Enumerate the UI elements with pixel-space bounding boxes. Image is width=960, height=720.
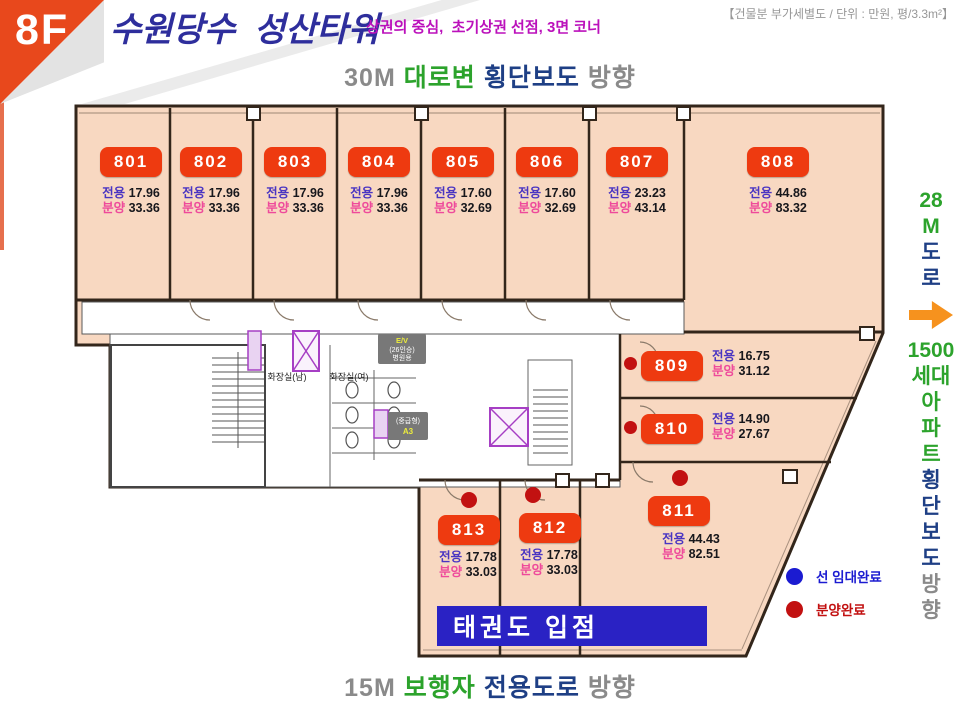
unit-exclusive-line: 전용 17.78 xyxy=(423,550,513,565)
exclusive-label: 전용 xyxy=(520,548,543,562)
unit-exclusive-line: 전용 17.96 xyxy=(250,186,340,201)
sale-value: 43.14 xyxy=(631,201,666,215)
sale-label: 분양 xyxy=(434,201,457,215)
unit-area-804: 전용 17.96분양 33.36 xyxy=(334,186,424,216)
unit-exclusive-line: 전용 17.96 xyxy=(86,186,176,201)
heading-part: 횡단보도 xyxy=(484,64,580,92)
exclusive-value: 44.86 xyxy=(772,186,807,200)
unit-sale-line: 분양 82.51 xyxy=(646,547,736,562)
unit-sale-line: 분양 33.36 xyxy=(86,201,176,216)
unit-badge-811: 811 xyxy=(648,496,710,526)
unit-badge-810: 810 xyxy=(641,414,703,444)
exclusive-value: 17.78 xyxy=(543,548,578,562)
exclusive-label: 전용 xyxy=(350,186,373,200)
rail-char: 아 xyxy=(903,390,959,416)
rail-char: 로 xyxy=(903,266,959,292)
unit-badge-806: 806 xyxy=(516,147,578,177)
sale-label: 분양 xyxy=(518,201,541,215)
rail-char: 28 xyxy=(903,188,959,214)
unit-sale-line: 분양 33.36 xyxy=(334,201,424,216)
rail-char: 향 xyxy=(903,598,959,624)
rail-char: 도 xyxy=(903,240,959,266)
rail-char: 단 xyxy=(903,494,959,520)
sold-dot-810 xyxy=(624,421,637,434)
unit-exclusive-line: 전용 17.60 xyxy=(502,186,592,201)
exclusive-label: 전용 xyxy=(662,532,685,546)
unit-area-806: 전용 17.60분양 32.69 xyxy=(502,186,592,216)
exclusive-value: 17.96 xyxy=(373,186,408,200)
unit-sale-line: 분양 31.12 xyxy=(712,364,770,379)
rail-char: 보 xyxy=(903,520,959,546)
unit-sale-line: 분양 33.36 xyxy=(250,201,340,216)
exclusive-value: 14.90 xyxy=(735,412,770,426)
sale-value: 33.36 xyxy=(289,201,324,215)
unit-badge-807: 807 xyxy=(606,147,668,177)
legend-row: 선 임대완료 xyxy=(786,566,882,586)
heading-part: 보행자 xyxy=(404,674,476,702)
unit-area-809: 전용 16.75분양 31.12 xyxy=(712,349,770,379)
unit-exclusive-line: 전용 17.78 xyxy=(504,548,594,563)
flyer-page: 8F 수원당수 성산타워 상권의 중심, 초기상권 선점, 3면 코너 【건물분… xyxy=(0,0,960,720)
unit-area-801: 전용 17.96분양 33.36 xyxy=(86,186,176,216)
sale-label: 분양 xyxy=(749,201,772,215)
unit-exclusive-line: 전용 17.96 xyxy=(334,186,424,201)
exclusive-label: 전용 xyxy=(102,186,125,200)
heading-part: 방향 xyxy=(588,64,636,92)
tenant-banner: 태권도 입점 xyxy=(437,606,707,646)
sale-label: 분양 xyxy=(439,565,462,579)
unit-sale-line: 분양 27.67 xyxy=(712,427,770,442)
sale-value: 82.51 xyxy=(685,547,720,561)
direction-bottom-heading: 15M보행자전용도로방향 xyxy=(75,668,905,704)
sale-value: 33.03 xyxy=(462,565,497,579)
unit-badge-804: 804 xyxy=(348,147,410,177)
unit-area-802: 전용 17.96분양 33.36 xyxy=(166,186,256,216)
unit-badge-805: 805 xyxy=(432,147,494,177)
heading-part: 15M xyxy=(344,674,396,702)
unit-area-808: 전용 44.86분양 83.32 xyxy=(733,186,823,216)
sale-value: 32.69 xyxy=(541,201,576,215)
heading-part: 대로변 xyxy=(404,64,476,92)
exclusive-value: 17.96 xyxy=(289,186,324,200)
rail-char: 도 xyxy=(903,546,959,572)
exclusive-label: 전용 xyxy=(608,186,631,200)
exclusive-label: 전용 xyxy=(712,412,735,426)
sale-value: 27.67 xyxy=(735,427,770,441)
unit-area-807: 전용 23.23분양 43.14 xyxy=(592,186,682,216)
sale-label: 분양 xyxy=(662,547,685,561)
sale-label: 분양 xyxy=(712,364,735,378)
right-arrow-icon xyxy=(909,301,953,329)
unit-sale-line: 분양 43.14 xyxy=(592,201,682,216)
unit-area-811: 전용 44.43분양 82.51 xyxy=(646,532,736,562)
legend: 선 임대완료분양완료 xyxy=(786,566,882,632)
heading-part: 30M xyxy=(344,64,396,92)
rail-char: 1500 xyxy=(903,338,959,364)
rail-char: M xyxy=(903,214,959,240)
unit-area-810: 전용 14.90분양 27.67 xyxy=(712,412,770,442)
legend-dot-icon xyxy=(786,568,803,585)
rail-char: 트 xyxy=(903,442,959,468)
unit-sale-line: 분양 33.36 xyxy=(166,201,256,216)
sale-value: 33.36 xyxy=(373,201,408,215)
sale-value: 83.32 xyxy=(772,201,807,215)
direction-right-rail: 28M도로1500세대아파트횡단보도방향 xyxy=(903,188,959,624)
sale-label: 분양 xyxy=(350,201,373,215)
unit-sale-line: 분양 33.03 xyxy=(423,565,513,580)
page-title: 수원당수 성산타워 xyxy=(110,2,379,51)
exclusive-label: 전용 xyxy=(434,186,457,200)
unit-exclusive-line: 전용 44.43 xyxy=(646,532,736,547)
exclusive-value: 17.96 xyxy=(205,186,240,200)
unit-area-805: 전용 17.60분양 32.69 xyxy=(418,186,508,216)
exclusive-label: 전용 xyxy=(266,186,289,200)
unit-exclusive-line: 전용 16.75 xyxy=(712,349,770,364)
unit-sale-line: 분양 32.69 xyxy=(502,201,592,216)
vat-unit-note: 【건물분 부가세별도 / 단위 : 만원, 평/3.3m²】 xyxy=(722,5,954,22)
unit-sale-line: 분양 33.03 xyxy=(504,563,594,578)
unit-badge-812: 812 xyxy=(519,513,581,543)
unit-exclusive-line: 전용 44.86 xyxy=(733,186,823,201)
unit-exclusive-line: 전용 17.96 xyxy=(166,186,256,201)
rail-char: 파 xyxy=(903,416,959,442)
legend-label: 선 임대완료 xyxy=(816,566,882,586)
exclusive-value: 44.43 xyxy=(685,532,720,546)
exclusive-label: 전용 xyxy=(749,186,772,200)
unit-badge-813: 813 xyxy=(438,515,500,545)
unit-badge-802: 802 xyxy=(180,147,242,177)
rail-char: 횡 xyxy=(903,468,959,494)
unit-badge-809: 809 xyxy=(641,351,703,381)
sold-dot-809 xyxy=(624,357,637,370)
unit-badge-801: 801 xyxy=(100,147,162,177)
sold-dot-811 xyxy=(672,470,688,486)
sale-label: 분양 xyxy=(266,201,289,215)
sale-value: 31.12 xyxy=(735,364,770,378)
unit-sale-line: 분양 32.69 xyxy=(418,201,508,216)
heading-part: 전용도로 xyxy=(484,674,580,702)
exclusive-value: 23.23 xyxy=(631,186,666,200)
exclusive-label: 전용 xyxy=(518,186,541,200)
sale-label: 분양 xyxy=(182,201,205,215)
rail-char: 세대 xyxy=(903,364,959,390)
legend-dot-icon xyxy=(786,601,803,618)
sale-label: 분양 xyxy=(520,563,543,577)
unit-sale-line: 분양 83.32 xyxy=(733,201,823,216)
exclusive-value: 17.60 xyxy=(541,186,576,200)
exclusive-label: 전용 xyxy=(182,186,205,200)
sale-label: 분양 xyxy=(608,201,631,215)
exclusive-label: 전용 xyxy=(439,550,462,564)
sold-dot-813 xyxy=(461,492,477,508)
unit-exclusive-line: 전용 23.23 xyxy=(592,186,682,201)
exclusive-value: 16.75 xyxy=(735,349,770,363)
sale-value: 33.36 xyxy=(125,201,160,215)
sale-value: 32.69 xyxy=(457,201,492,215)
exclusive-value: 17.78 xyxy=(462,550,497,564)
heading-part: 방향 xyxy=(588,674,636,702)
sold-dot-812 xyxy=(525,487,541,503)
legend-row: 분양완료 xyxy=(786,599,882,619)
unit-area-803: 전용 17.96분양 33.36 xyxy=(250,186,340,216)
unit-badge-803: 803 xyxy=(264,147,326,177)
unit-badge-808: 808 xyxy=(747,147,809,177)
rail-char: 방 xyxy=(903,572,959,598)
sale-value: 33.03 xyxy=(543,563,578,577)
unit-area-813: 전용 17.78분양 33.03 xyxy=(423,550,513,580)
legend-label: 분양완료 xyxy=(816,599,866,619)
sale-value: 33.36 xyxy=(205,201,240,215)
sale-label: 분양 xyxy=(102,201,125,215)
page-subtitle: 상권의 중심, 초기상권 선점, 3면 코너 xyxy=(366,16,601,37)
unit-exclusive-line: 전용 14.90 xyxy=(712,412,770,427)
exclusive-value: 17.96 xyxy=(125,186,160,200)
unit-area-812: 전용 17.78분양 33.03 xyxy=(504,548,594,578)
sale-label: 분양 xyxy=(712,427,735,441)
direction-top-heading: 30M대로변횡단보도방향 xyxy=(75,58,905,94)
exclusive-label: 전용 xyxy=(712,349,735,363)
exclusive-value: 17.60 xyxy=(457,186,492,200)
unit-exclusive-line: 전용 17.60 xyxy=(418,186,508,201)
